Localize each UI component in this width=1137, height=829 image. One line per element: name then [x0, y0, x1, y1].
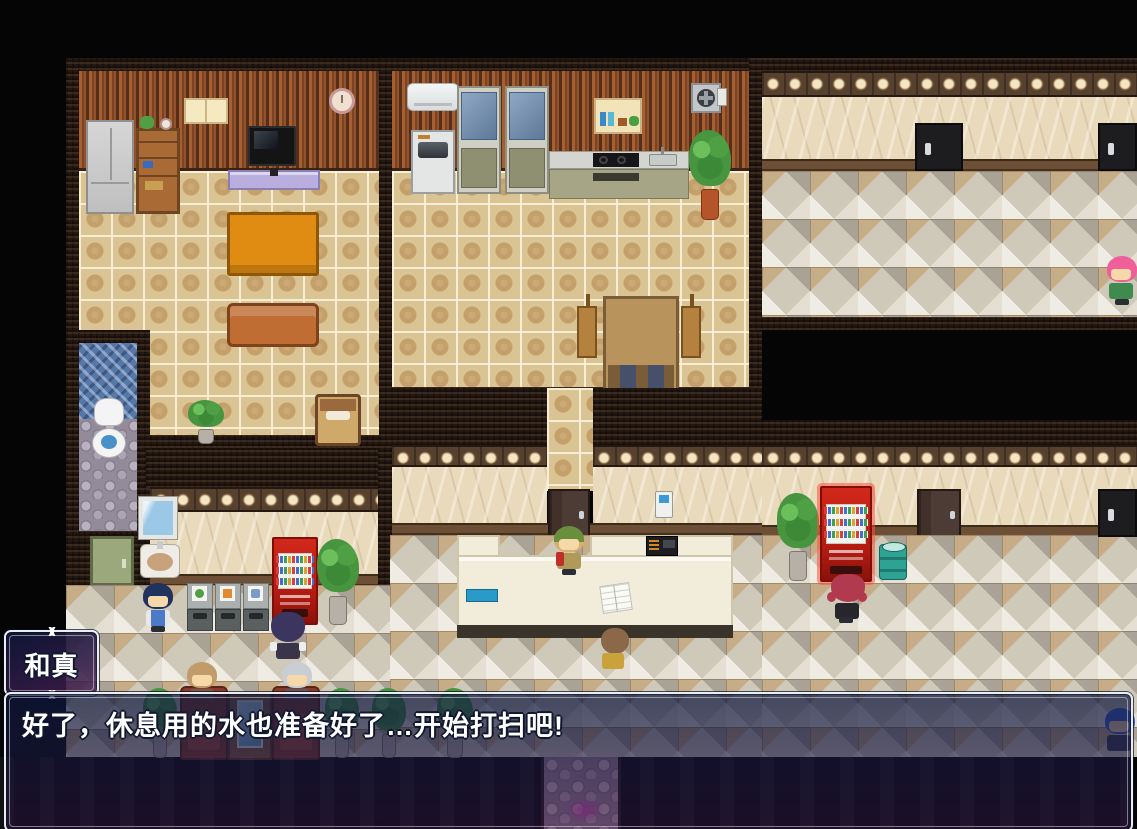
npc-face [148, 596, 168, 607]
npc-body [146, 610, 170, 626]
upper-hallway-floor [762, 171, 1137, 317]
npc-hair-bun [858, 592, 867, 602]
air-conditioner [407, 83, 459, 111]
npc-customer-brown[interactable] [598, 628, 630, 674]
living-room-plant [188, 400, 224, 444]
corridor-medallion-left [392, 445, 547, 467]
npc-kid-blue[interactable] [140, 583, 176, 633]
npc-face [287, 675, 307, 686]
barrel[interactable] [879, 544, 907, 580]
washing-machine [411, 130, 455, 194]
kitchen-passage-floor [547, 388, 593, 491]
lobby-plant-left [317, 539, 359, 625]
lobby-right-upper-frame [762, 420, 1137, 448]
hallway-door-1[interactable] [915, 123, 963, 171]
kitchen-counter [549, 151, 689, 199]
npc-purple-hair[interactable] [268, 612, 308, 668]
lobby-left-medallion-band [150, 487, 390, 512]
corridor-wall-right [593, 467, 762, 523]
wardrobe [86, 120, 134, 214]
npc-face [559, 539, 579, 550]
npc-red-hair[interactable] [828, 574, 866, 626]
npc-held-item [270, 642, 277, 651]
npc-receptionist[interactable] [551, 526, 587, 578]
name-box: 和真 [4, 630, 99, 696]
npc-feet [151, 626, 165, 632]
bed [315, 394, 361, 446]
lobby-far-right-door[interactable] [1098, 489, 1137, 537]
name-box-ornament-top [44, 627, 60, 636]
cash-register[interactable] [646, 536, 678, 556]
hallway-door-2[interactable] [1098, 123, 1137, 171]
wall-switch [717, 88, 727, 106]
wall-clock [329, 88, 355, 114]
dining-chair-right [681, 306, 701, 358]
counter-tray [466, 589, 498, 602]
kitchen-plant [689, 130, 731, 220]
npc-body [602, 653, 624, 669]
sink[interactable] [140, 544, 180, 578]
glass-cabinets [457, 86, 549, 194]
reception-counter[interactable] [457, 555, 733, 627]
call-panel[interactable] [655, 491, 673, 518]
ledger-book[interactable] [599, 582, 633, 614]
bookshelf [136, 128, 180, 214]
npc-feet [839, 617, 853, 623]
reception-counter-tab-left [457, 535, 500, 557]
shelf-plant [140, 116, 154, 129]
recycle-bins[interactable] [187, 583, 269, 631]
npc-body [276, 643, 300, 659]
lobby-plant-right [777, 493, 819, 581]
sofa [227, 303, 319, 347]
npc-face [1111, 269, 1131, 280]
reception-counter-base [457, 625, 733, 638]
tv [248, 126, 296, 166]
green-door[interactable] [90, 536, 134, 586]
wall-shelf [594, 98, 642, 134]
npc-body [1109, 283, 1133, 299]
low-table [227, 212, 319, 276]
npc-feet [1115, 299, 1129, 305]
npc-hair [601, 628, 629, 654]
shelf-clock [160, 118, 172, 130]
speaker-name: 和真 [6, 646, 97, 683]
npc-feet [562, 569, 576, 575]
lobby-right-door[interactable] [917, 489, 961, 535]
vending-machine-right[interactable] [820, 486, 872, 582]
npc-hair-bun [827, 592, 836, 602]
lobby-left-upper-frame [146, 448, 392, 488]
lobby-right-medallion-band [762, 445, 1137, 467]
message-text: 好了，休息用的水也准备好了…开始打扫吧! [22, 704, 1115, 743]
corridor-wall-left [392, 467, 547, 523]
npc-face [192, 675, 212, 686]
game-viewport[interactable]: 和真 好了，休息用的水也准备好了…开始打扫吧! [0, 0, 1137, 829]
toilet[interactable] [92, 398, 126, 468]
corridor-wall-block-left [379, 388, 547, 448]
message-window[interactable]: 好了，休息用的水也准备好了…开始打扫吧! [4, 692, 1133, 829]
corridor-wall-block-right [593, 388, 762, 448]
dining-table [603, 296, 679, 396]
upper-hallway-medallion-band [762, 71, 1137, 97]
dining-chair-left [577, 306, 597, 358]
window [184, 98, 228, 124]
npc-scarf [556, 552, 564, 566]
mirror [139, 497, 177, 539]
npc-hair [271, 612, 305, 642]
npc-held-item [299, 642, 306, 651]
npc-pink-hair[interactable] [1104, 256, 1137, 308]
corridor-medallion-right [593, 445, 762, 467]
